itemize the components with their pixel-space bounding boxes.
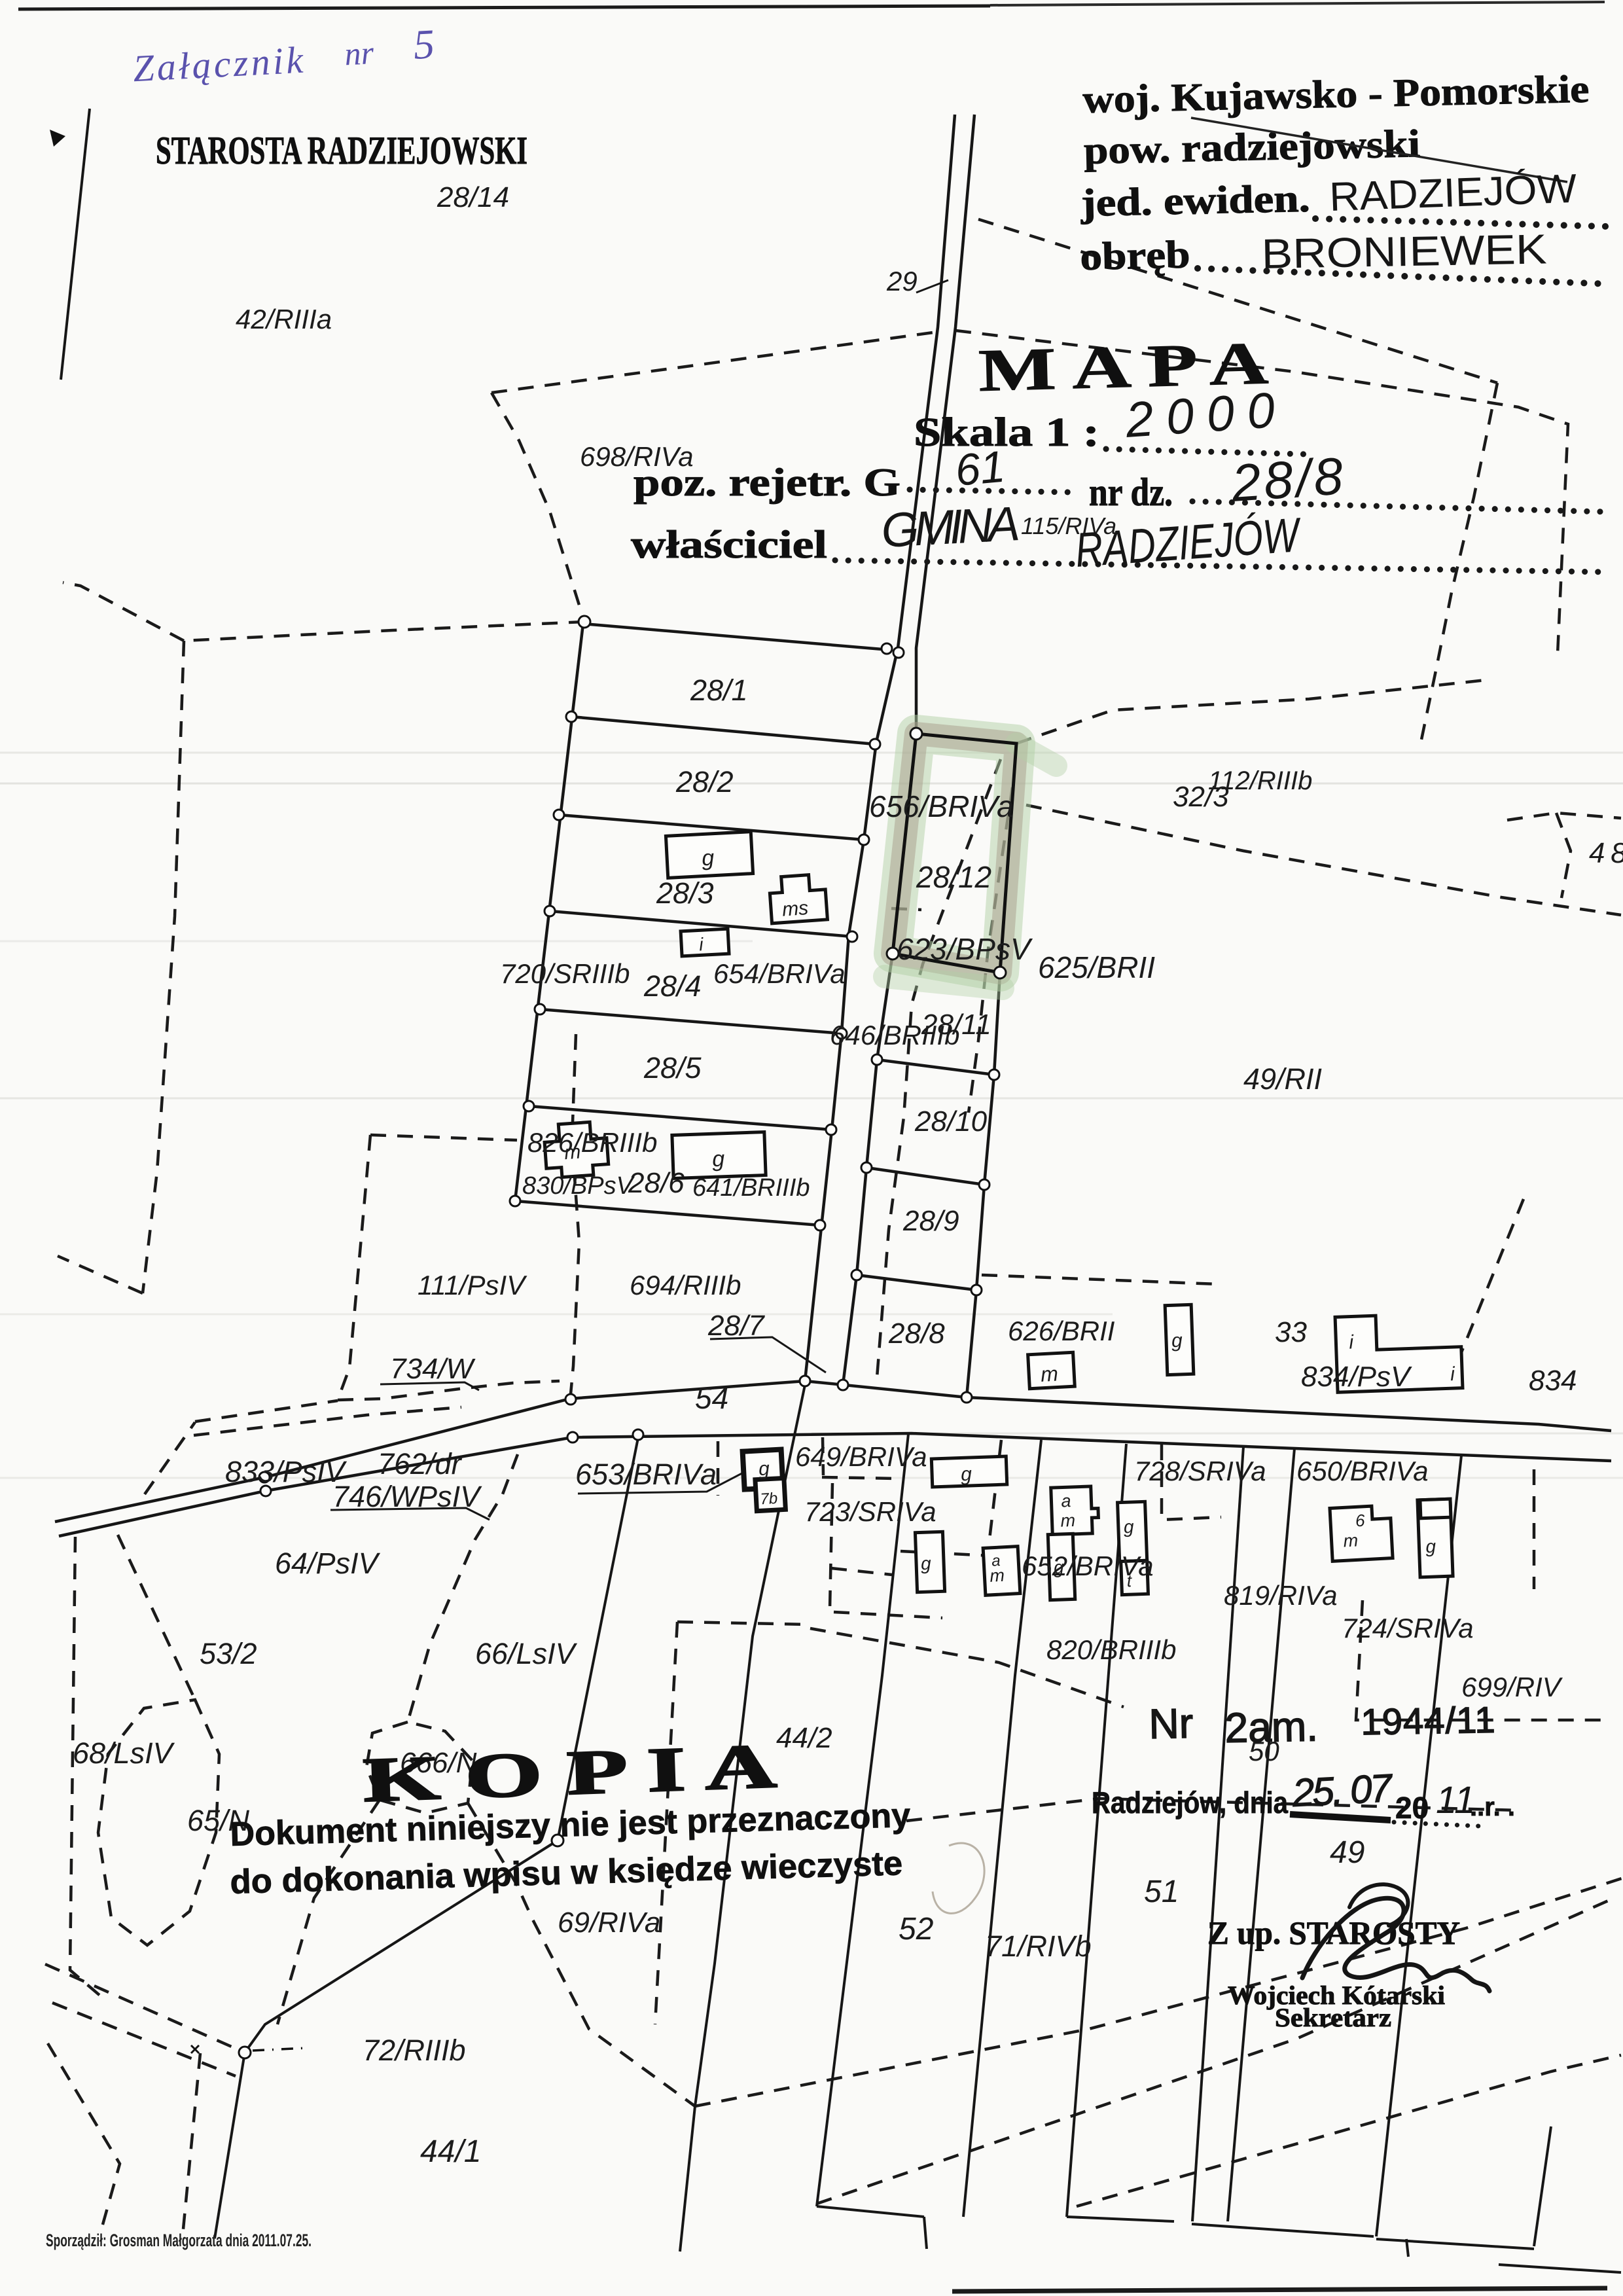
svg-text:1944/11: 1944/11 (1361, 1699, 1495, 1743)
svg-text:49: 49 (1330, 1835, 1364, 1870)
svg-text:33: 33 (1275, 1316, 1307, 1348)
svg-text:66/LsIV: 66/LsIV (475, 1637, 578, 1670)
svg-text:820/BRIIIb: 820/BRIIIb (1046, 1634, 1176, 1665)
svg-text:g: g (921, 1553, 932, 1574)
svg-text:71/RIVb: 71/RIVb (985, 1929, 1092, 1963)
svg-text:28/10: 28/10 (914, 1105, 988, 1138)
svg-text:Sekretarz: Sekretarz (1275, 2003, 1391, 2032)
svg-text:720/SRIIIb: 720/SRIIIb (500, 958, 630, 989)
svg-text:RADZIEJÓW: RADZIEJÓW (1329, 166, 1578, 220)
svg-text:52: 52 (899, 1912, 933, 1946)
svg-text:a: a (1061, 1491, 1071, 1511)
svg-text:762/dr: 762/dr (378, 1447, 463, 1480)
svg-text:623/BPsV: 623/BPsV (897, 932, 1033, 966)
svg-text:833/PsIV: 833/PsIV (225, 1455, 348, 1488)
svg-text:g: g (758, 1458, 770, 1480)
svg-text:111/PsIV: 111/PsIV (418, 1270, 527, 1300)
svg-text:Skala 1 :: Skala 1 : (914, 410, 1099, 455)
svg-text:ms: ms (781, 897, 809, 921)
svg-text:m: m (1060, 1511, 1076, 1531)
svg-text:654/BRIVa: 654/BRIVa (713, 958, 846, 989)
svg-text:656/BRIVa: 656/BRIVa (869, 789, 1014, 823)
svg-text:..r. .: ..r. . (1470, 1793, 1515, 1821)
svg-text:72/RIIIb: 72/RIIIb (363, 2034, 466, 2067)
svg-text:653/BRIVa: 653/BRIVa (575, 1458, 717, 1491)
svg-text:25. 07: 25. 07 (1291, 1766, 1395, 1815)
svg-text:28/8: 28/8 (1229, 446, 1345, 512)
svg-text:625/BRII: 625/BRII (1038, 950, 1155, 984)
svg-text:28/11: 28/11 (921, 1009, 991, 1041)
svg-text:28/7: 28/7 (707, 1310, 765, 1342)
svg-text:54: 54 (695, 1381, 728, 1415)
svg-text:Sporządził: Grosman Małgorzata: Sporządził: Grosman Małgorzata dnia 2011… (46, 2231, 312, 2250)
svg-text:650/BRIVa: 650/BRIVa (1296, 1456, 1429, 1486)
svg-text:Nr: Nr (1149, 1700, 1194, 1748)
svg-text:834: 834 (1529, 1365, 1577, 1397)
svg-text:68/LsIV: 68/LsIV (73, 1736, 175, 1770)
svg-text:g: g (961, 1463, 972, 1486)
svg-text:694/RIIIb: 694/RIIIb (630, 1270, 741, 1300)
svg-text:29: 29 (886, 266, 918, 296)
svg-text:6: 6 (1355, 1511, 1366, 1531)
svg-text:64/PsIV: 64/PsIV (275, 1547, 381, 1580)
svg-text:5: 5 (412, 20, 436, 68)
svg-text:pow. radziejowski: pow. radziejowski (1083, 122, 1420, 172)
svg-text:652/BRIVa: 652/BRIVa (1022, 1551, 1154, 1581)
svg-text:746/WPsIV: 746/WPsIV (332, 1480, 482, 1513)
svg-text:g: g (701, 846, 715, 871)
svg-text:834/PsV: 834/PsV (1301, 1361, 1412, 1393)
svg-text:g: g (712, 1147, 725, 1172)
svg-text:4 8: 4 8 (1589, 837, 1623, 869)
svg-text:32/3: 32/3 (1173, 781, 1229, 813)
svg-text:STAROSTA RADZIEJOWSKI: STAROSTA RADZIEJOWSKI (156, 129, 527, 172)
svg-text:28/3: 28/3 (656, 876, 714, 910)
svg-text:61: 61 (954, 442, 1007, 495)
svg-text:m: m (1343, 1530, 1359, 1551)
svg-text:28/4: 28/4 (643, 969, 702, 1003)
svg-text:nr: nr (344, 34, 375, 72)
svg-text:g: g (1425, 1536, 1436, 1557)
svg-text:49/RII: 49/RII (1243, 1062, 1322, 1096)
svg-text:28/14: 28/14 (437, 181, 509, 213)
svg-text:641/BRIIIb: 641/BRIIIb (692, 1174, 810, 1202)
svg-text:830/BPsV: 830/BPsV (522, 1172, 635, 1200)
svg-text:a: a (991, 1552, 1001, 1570)
svg-text:Z up. STAROSTY: Z up. STAROSTY (1207, 1914, 1460, 1951)
svg-text:42/RIIIa: 42/RIIIa (236, 304, 332, 334)
svg-text:obręb: obręb (1080, 233, 1190, 279)
svg-text:626/BRII: 626/BRII (1008, 1316, 1115, 1346)
svg-text:BRONIEWEK: BRONIEWEK (1261, 225, 1547, 278)
svg-text:819/RIVa: 819/RIVa (1224, 1580, 1338, 1611)
svg-text:Załącznik: Załącznik (132, 39, 304, 90)
svg-text:51: 51 (1144, 1874, 1179, 1909)
svg-text:826/BRIIIb: 826/BRIIIb (527, 1127, 657, 1158)
svg-text:69/RIVa: 69/RIVa (558, 1907, 660, 1939)
svg-text:GMINA: GMINA (880, 496, 1021, 558)
svg-text:53/2: 53/2 (200, 1637, 257, 1670)
svg-text:20: 20 (1395, 1791, 1429, 1825)
svg-text:44/1: 44/1 (420, 2134, 481, 2169)
svg-text:699/RIV: 699/RIV (1461, 1672, 1563, 1702)
svg-text:2am.: 2am. (1224, 1702, 1319, 1751)
svg-text:28/6: 28/6 (628, 1167, 685, 1199)
svg-text:g: g (1123, 1516, 1134, 1537)
svg-text:734/W: 734/W (390, 1353, 476, 1385)
svg-text:28/8: 28/8 (888, 1318, 945, 1350)
svg-text:g: g (1171, 1330, 1183, 1352)
svg-text:jed. ewiden.: jed. ewiden. (1080, 177, 1310, 224)
svg-text:28/2: 28/2 (675, 765, 734, 798)
svg-text:poz. rejetr. G: poz. rejetr. G (633, 461, 901, 504)
svg-text:728/SRIVa: 728/SRIVa (1134, 1456, 1266, 1486)
svg-text:Radziejów, dnia: Radziejów, dnia (1092, 1785, 1288, 1820)
svg-text:nr dz.: nr dz. (1089, 471, 1173, 514)
svg-text:7b: 7b (760, 1490, 778, 1508)
svg-text:649/BRIVa: 649/BRIVa (795, 1441, 927, 1472)
svg-text:723/SRIVa: 723/SRIVa (804, 1496, 936, 1527)
svg-text:724/SRIVa: 724/SRIVa (1342, 1613, 1474, 1643)
svg-text:28/12: 28/12 (916, 860, 991, 894)
svg-text:28/1: 28/1 (690, 673, 748, 707)
svg-text:m: m (1040, 1361, 1059, 1386)
svg-text:28/5: 28/5 (643, 1051, 702, 1085)
svg-text:właściciel: właściciel (631, 523, 827, 566)
svg-text:28/9: 28/9 (902, 1205, 959, 1237)
svg-text:44/2: 44/2 (776, 1722, 832, 1754)
